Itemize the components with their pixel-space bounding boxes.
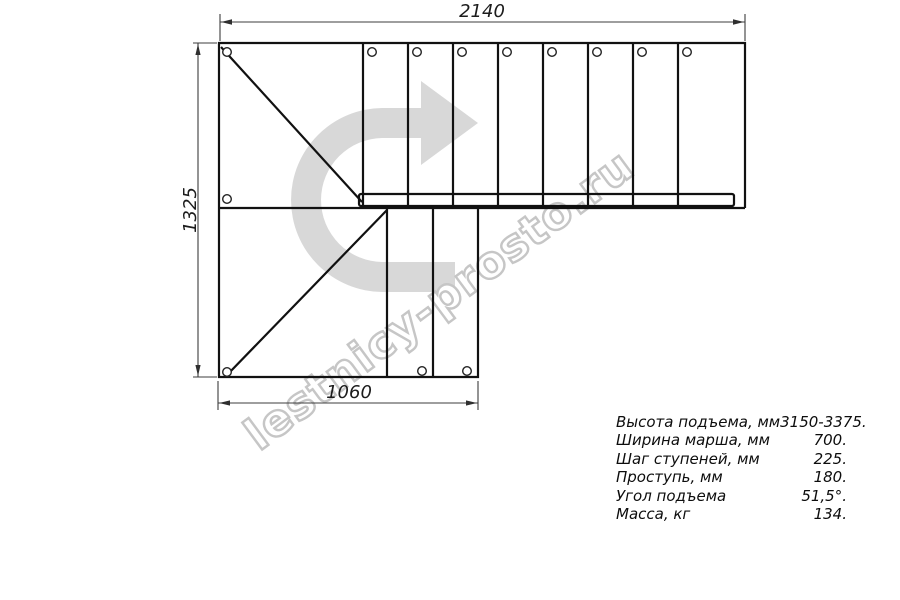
- spec-row-tread-depth: Проступь, мм 180.: [616, 468, 847, 486]
- dimension-arrowhead: [221, 19, 232, 25]
- spec-value: 51,5°.: [801, 487, 847, 505]
- dimension-arrowhead: [195, 365, 200, 376]
- dimension-arrowhead: [733, 19, 744, 25]
- mounting-hole: [593, 48, 602, 57]
- stair-plan-page: lestnicy-prosto.ru: [0, 0, 900, 600]
- mounting-hole: [368, 48, 377, 57]
- dimension-arrowhead: [219, 400, 230, 405]
- dimension-left-label: 1325: [180, 187, 201, 233]
- mounting-hole: [223, 195, 232, 204]
- dimension-arrowhead: [195, 44, 200, 55]
- spec-label: Высота подъема, мм: [616, 413, 780, 431]
- spec-label: Масса, кг: [616, 505, 690, 523]
- mounting-hole: [463, 367, 472, 376]
- spec-label: Угол подъема: [616, 487, 726, 505]
- dimension-arrowhead: [466, 400, 477, 405]
- spec-value: 225.: [814, 450, 847, 468]
- spec-row-climb-angle: Угол подъема 51,5°.: [616, 487, 847, 505]
- mounting-hole: [458, 48, 467, 57]
- mounting-hole: [548, 48, 557, 57]
- mounting-hole: [503, 48, 512, 57]
- spec-value: 180.: [814, 468, 847, 486]
- spec-value: 134.: [814, 505, 847, 523]
- mounting-hole: [223, 368, 232, 377]
- specs-table: Высота подъема, мм 3150-3375. Ширина мар…: [616, 413, 847, 523]
- mounting-hole: [413, 48, 422, 57]
- spec-row-height: Высота подъема, мм 3150-3375.: [616, 413, 847, 431]
- spec-label: Шаг ступеней, мм: [616, 450, 760, 468]
- mounting-hole: [418, 367, 427, 376]
- spec-label: Проступь, мм: [616, 468, 723, 486]
- spec-row-flight-width: Ширина марша, мм 700.: [616, 431, 847, 449]
- mounting-hole: [223, 48, 232, 57]
- spec-row-mass: Масса, кг 134.: [616, 505, 847, 523]
- spec-label: Ширина марша, мм: [616, 431, 770, 449]
- mounting-hole: [683, 48, 692, 57]
- dimension-top-label: 2140: [459, 1, 505, 22]
- spec-value: 700.: [814, 431, 847, 449]
- dimension-bottom-label: 1060: [326, 382, 372, 403]
- mounting-hole: [638, 48, 647, 57]
- spec-value: 3150-3375.: [780, 413, 867, 431]
- dimension-top-width: 2140: [220, 1, 745, 41]
- spec-row-step-pitch: Шаг ступеней, мм 225.: [616, 450, 847, 468]
- dimension-left-height: 1325: [180, 43, 217, 377]
